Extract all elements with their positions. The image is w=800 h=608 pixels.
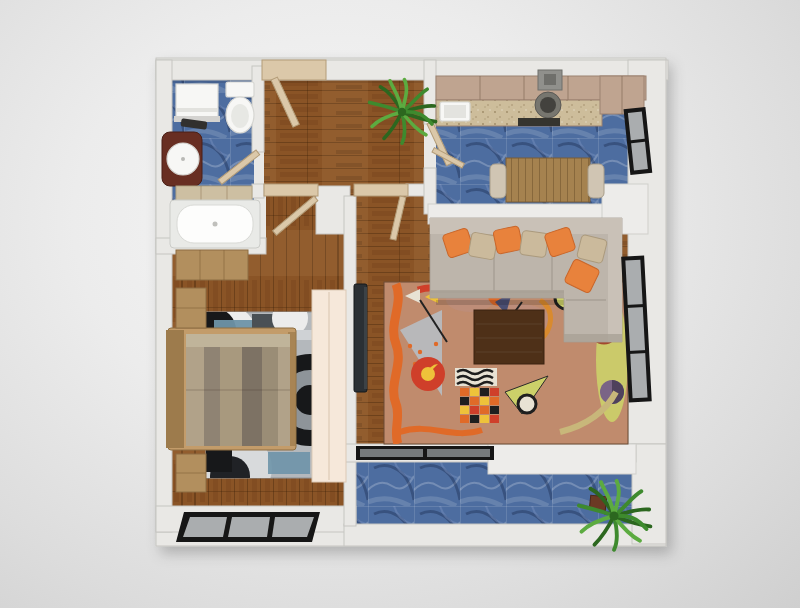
floor-plan-render	[0, 0, 800, 608]
toilet-tank	[226, 82, 254, 97]
sliding-balcony-door	[356, 446, 494, 460]
wall-left	[156, 60, 172, 532]
bed	[166, 328, 296, 450]
oven-front	[518, 118, 560, 126]
entry-door-header	[262, 60, 326, 80]
headboard	[166, 330, 184, 448]
entry-hall-floor	[264, 78, 424, 196]
tv-screen-edge	[364, 287, 367, 389]
dining-table	[506, 158, 590, 202]
washing-machine-seam	[176, 108, 218, 112]
dining-chair-right	[588, 164, 604, 198]
dresser	[176, 250, 248, 280]
bedding	[186, 334, 290, 446]
washing-machine	[176, 84, 218, 118]
kitchen-window	[626, 109, 650, 173]
sink-drain	[181, 157, 185, 161]
bedroom-door-header	[264, 184, 318, 196]
pillow-band	[186, 334, 290, 347]
tub-drain	[213, 222, 218, 227]
bedroom-window	[176, 512, 320, 542]
coffee-table	[474, 310, 544, 364]
floor-plan-canvas	[0, 0, 800, 608]
kitchen-sink-basin	[444, 105, 466, 118]
dining-chair-left	[490, 164, 506, 198]
range-hood-vent	[544, 74, 556, 85]
balcony-shelf	[488, 444, 636, 474]
toilet-seat	[231, 104, 249, 128]
wall-bathroom-stub	[252, 184, 264, 198]
living-door-header	[354, 184, 408, 196]
cooktop-burner	[540, 97, 556, 113]
